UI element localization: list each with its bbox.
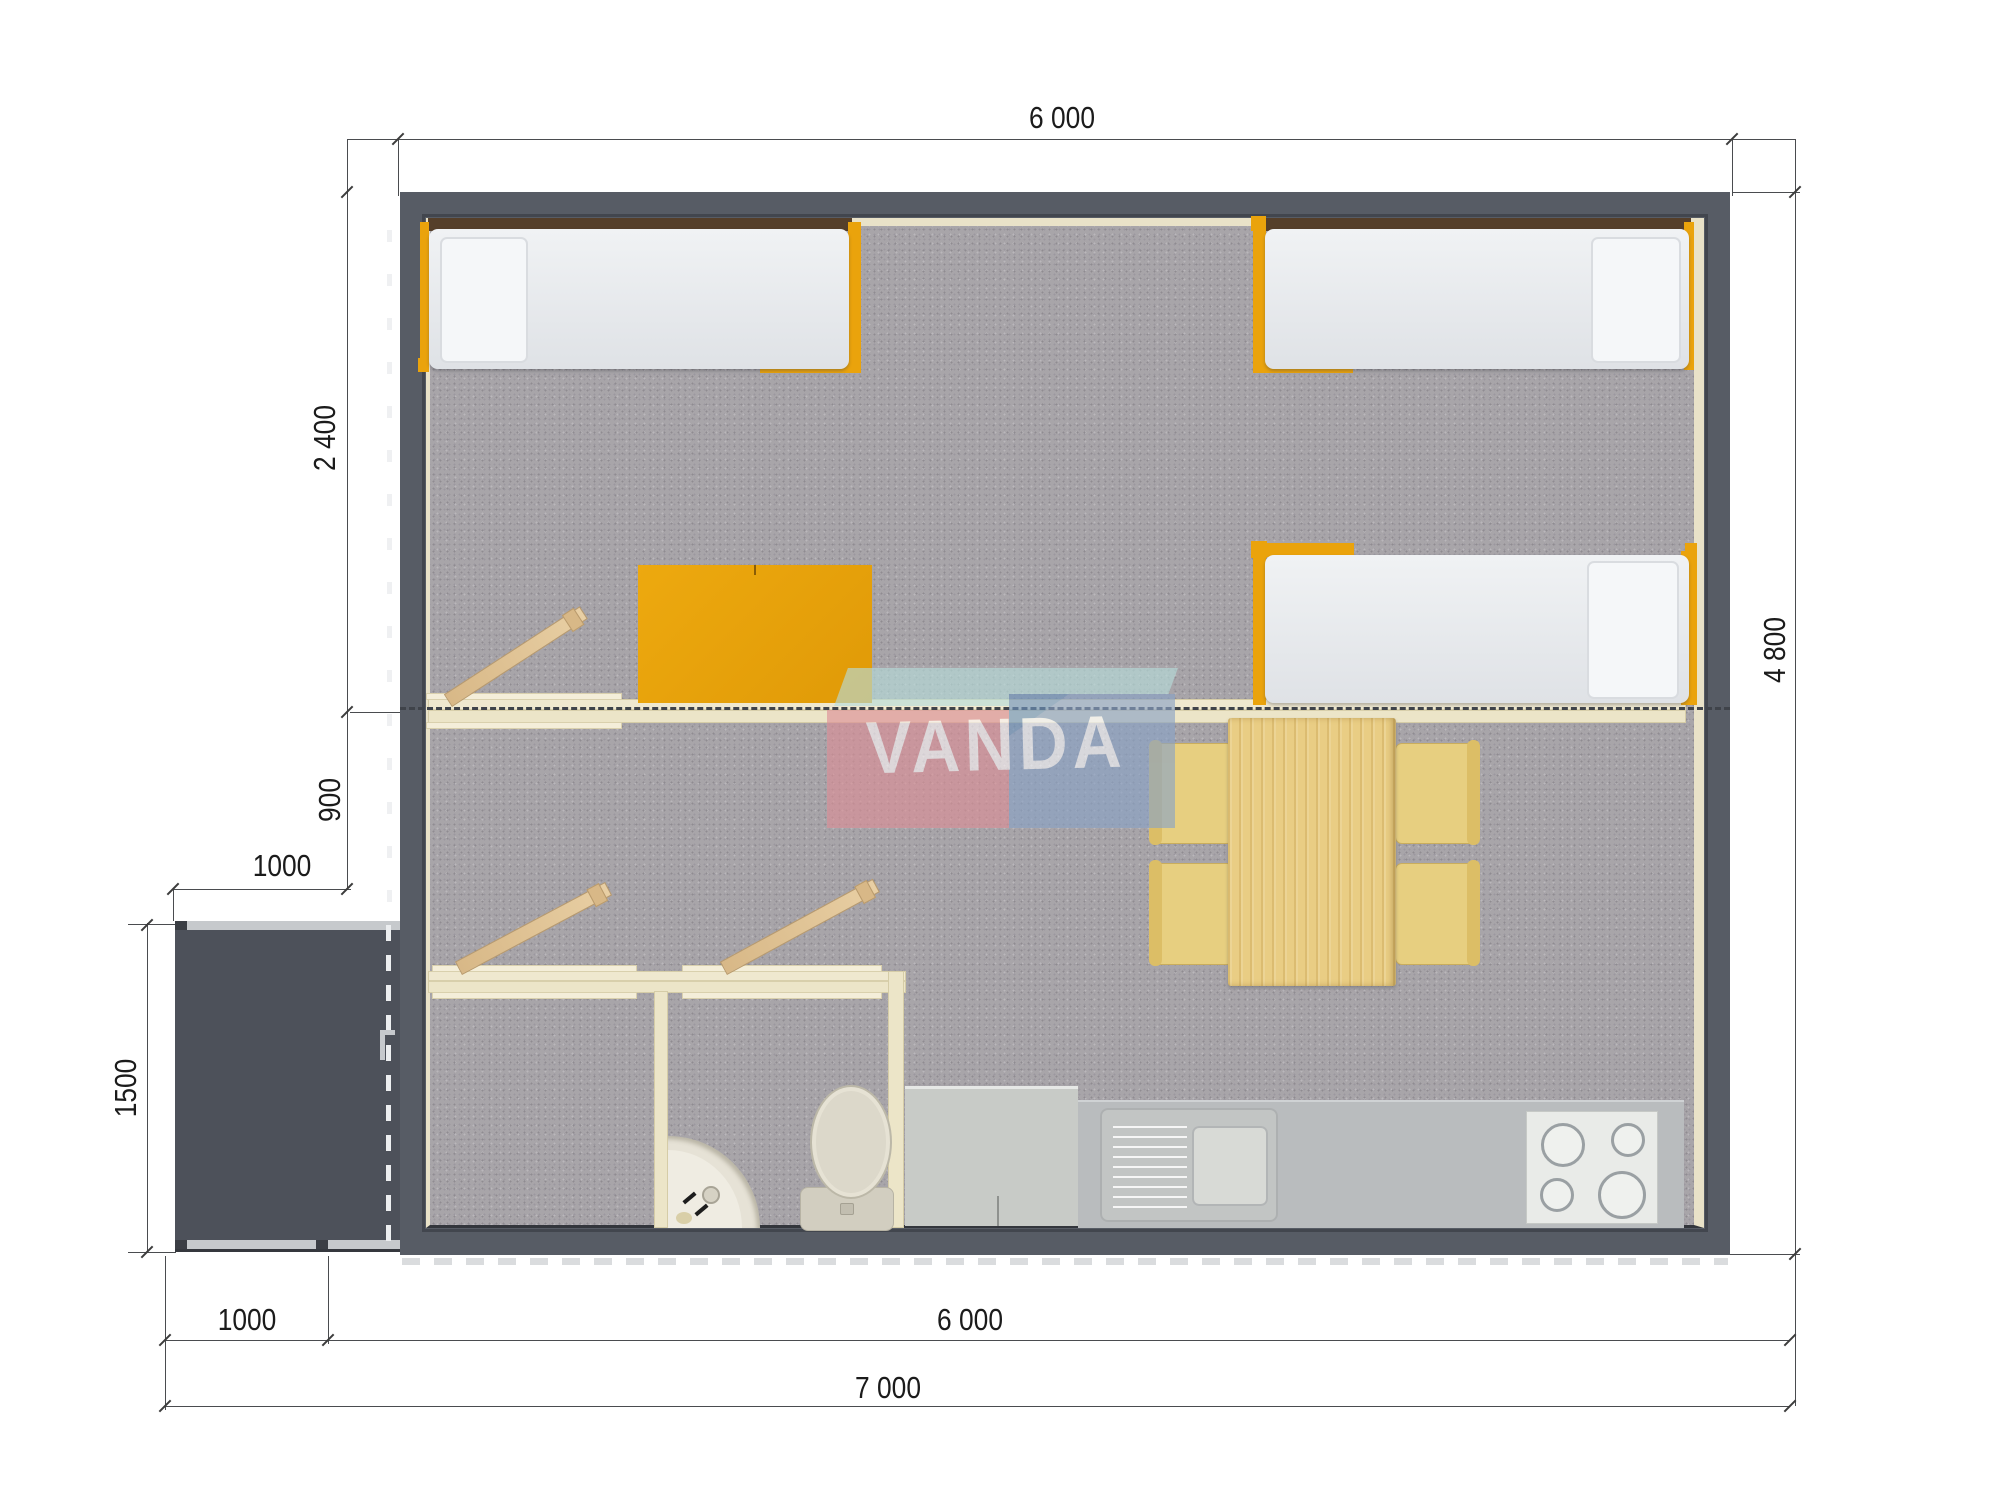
dim-label-hall-zone: 900 (312, 778, 348, 822)
toilet (798, 1083, 894, 1229)
dim-ext-right-b (1720, 1254, 1800, 1255)
entry-door-dashed-line (386, 925, 391, 1248)
porch-post (175, 1240, 187, 1249)
dim-label-porch-height: 1500 (108, 1059, 144, 1118)
dim-line-bottom-inner (165, 1340, 1790, 1341)
dim-line-porch-left (147, 923, 148, 1253)
sink-basin (1192, 1126, 1268, 1206)
porch-edge-bottom (175, 1240, 400, 1249)
kitchen-sink-unit (1100, 1108, 1278, 1222)
bed-frame-corner (1251, 216, 1266, 231)
dim-label-bottom-total: 7 000 (855, 1370, 921, 1406)
stove-4-burners (1527, 1112, 1657, 1223)
bathroom-door-track (682, 992, 882, 999)
washbasin-faucet (702, 1186, 720, 1204)
porch-deck (175, 921, 400, 1252)
sink-drainboard (1113, 1126, 1187, 1210)
bathroom-divider-wall (654, 991, 668, 1228)
bed-pillow (1591, 237, 1681, 363)
dim-ext-porch-top-left (173, 889, 174, 921)
washbasin-soap (676, 1212, 692, 1224)
bathroom-door-track (682, 965, 882, 972)
dim-label-bottom-porch: 1000 (218, 1302, 277, 1338)
chair-back (1467, 860, 1480, 966)
toilet-flush-button (840, 1203, 854, 1215)
dim-label-porch-top: 1000 (253, 848, 312, 884)
chair-back (1149, 860, 1162, 966)
bed-pillow (440, 237, 528, 363)
wardrobe-door-gap (754, 565, 756, 575)
burner-large (1541, 1123, 1585, 1167)
bathroom-front-wall (428, 971, 906, 993)
burner-small (1611, 1123, 1645, 1157)
chair-top-right (1395, 743, 1479, 844)
bed-frame-corner (418, 358, 429, 372)
bottom-wall-trim-dashes (402, 1258, 1728, 1265)
dim-label-bed-zone: 2 400 (307, 405, 343, 471)
dim-label-right-height: 4 800 (1757, 617, 1793, 683)
dining-table (1228, 718, 1396, 986)
bathroom-door-track (432, 992, 637, 999)
single-bed-top-left (418, 216, 862, 376)
chair-back (1467, 740, 1480, 845)
dim-line-porch-top (173, 889, 351, 890)
watermark-text: VANDA (828, 698, 1163, 792)
bed-frame-corner (1685, 543, 1697, 557)
floor-plan-canvas: 6 000 2 400 900 1000 1500 4 800 1000 6 0… (0, 0, 2000, 1502)
bed-frame-right (848, 222, 861, 372)
chair-bottom-left (1150, 863, 1234, 965)
dim-ext-bottom-a (165, 1256, 166, 1410)
dim-ext-right-a (1732, 192, 1800, 193)
burner-small (1540, 1178, 1574, 1212)
partition-door-track-bottom (426, 722, 622, 729)
dim-ext-top-left (398, 139, 399, 196)
dim-label-bottom-house: 6 000 (937, 1302, 1003, 1338)
dim-line-right (1795, 139, 1796, 1406)
fridge-door-gap (997, 1196, 999, 1226)
entry-door-handle (380, 1030, 395, 1060)
dim-ext-bottom-b (328, 1256, 329, 1344)
toilet-lid (810, 1085, 892, 1199)
dim-label-top-width: 6 000 (1029, 100, 1095, 136)
dim-ext-porch-left-a (128, 924, 176, 925)
vanda-watermark: VANDA (815, 658, 1177, 838)
bed-frame-left (420, 222, 429, 372)
single-bed-middle-right (1251, 541, 1697, 707)
left-wall-trim-dashes (387, 230, 392, 918)
dim-line-left (347, 139, 348, 889)
dim-ext-top-right (1732, 139, 1733, 196)
porch-post (316, 1240, 328, 1249)
dim-line-bottom-total (165, 1406, 1790, 1407)
burner-large (1598, 1171, 1646, 1219)
dim-tick-900-wall (350, 712, 400, 713)
porch-post (175, 921, 187, 930)
bed-pillow (1587, 561, 1679, 699)
dim-ext-porch-left-b (128, 1252, 176, 1253)
chair-bottom-right (1395, 863, 1479, 965)
dim-line-top (347, 139, 1796, 140)
fridge (905, 1086, 1078, 1226)
single-bed-top-right (1251, 216, 1697, 376)
porch-edge-top (175, 921, 400, 930)
